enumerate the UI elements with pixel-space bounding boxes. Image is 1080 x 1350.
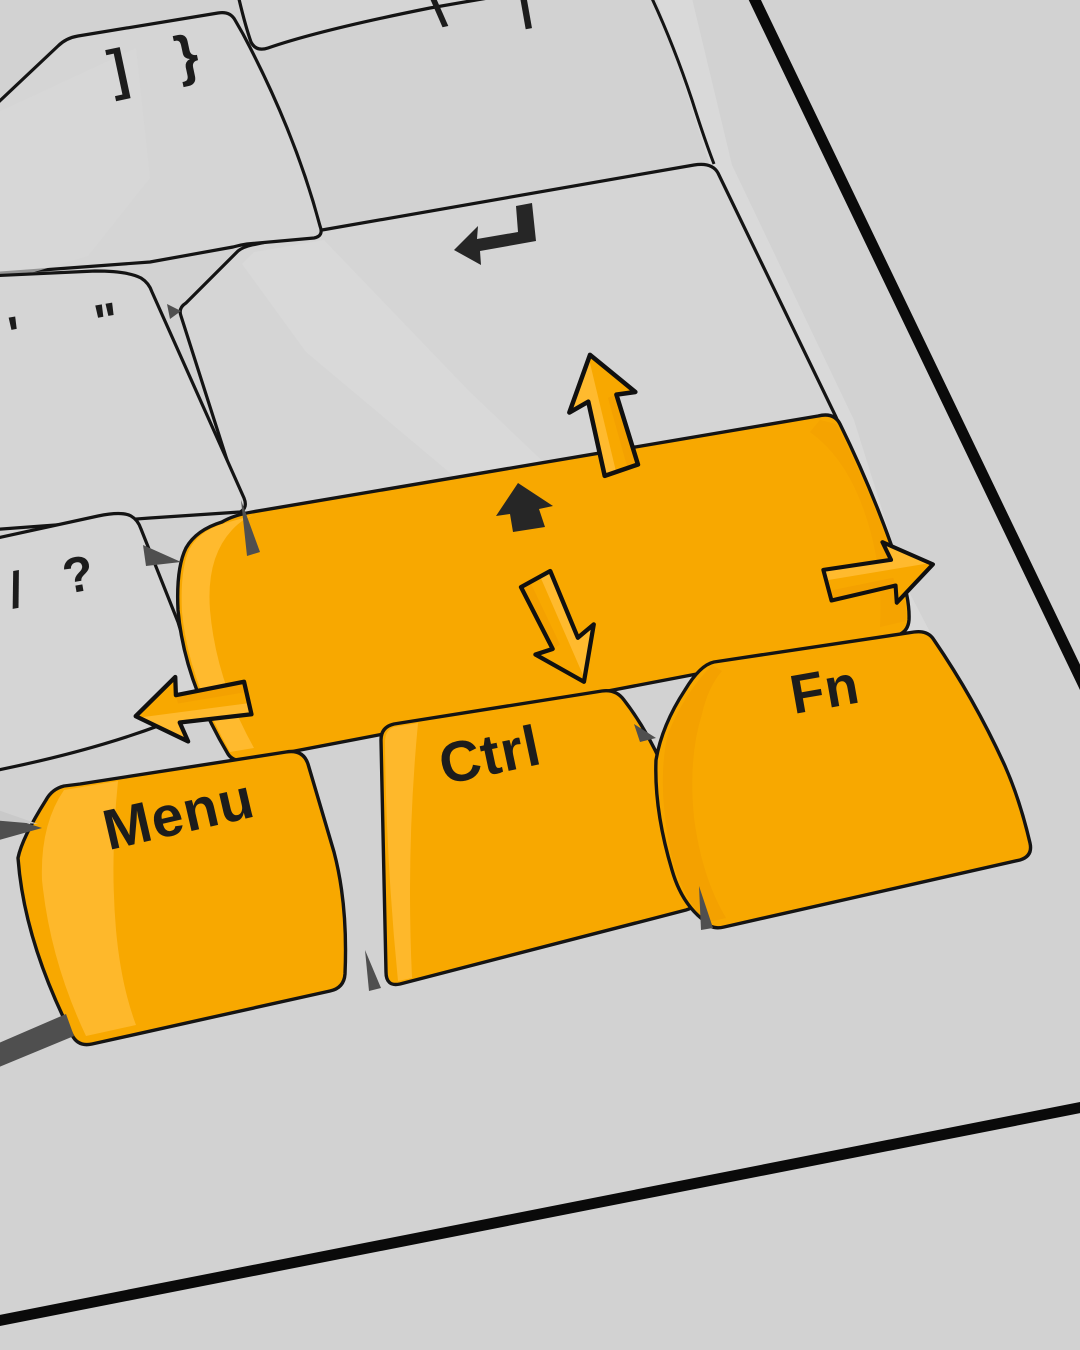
illustration-canvas: \ | ] } ' " / ? Menu bbox=[0, 0, 1080, 1350]
fn-legend: Fn bbox=[785, 653, 864, 726]
keyboard-illustration: \ | ] } ' " / ? Menu bbox=[0, 0, 1080, 1350]
